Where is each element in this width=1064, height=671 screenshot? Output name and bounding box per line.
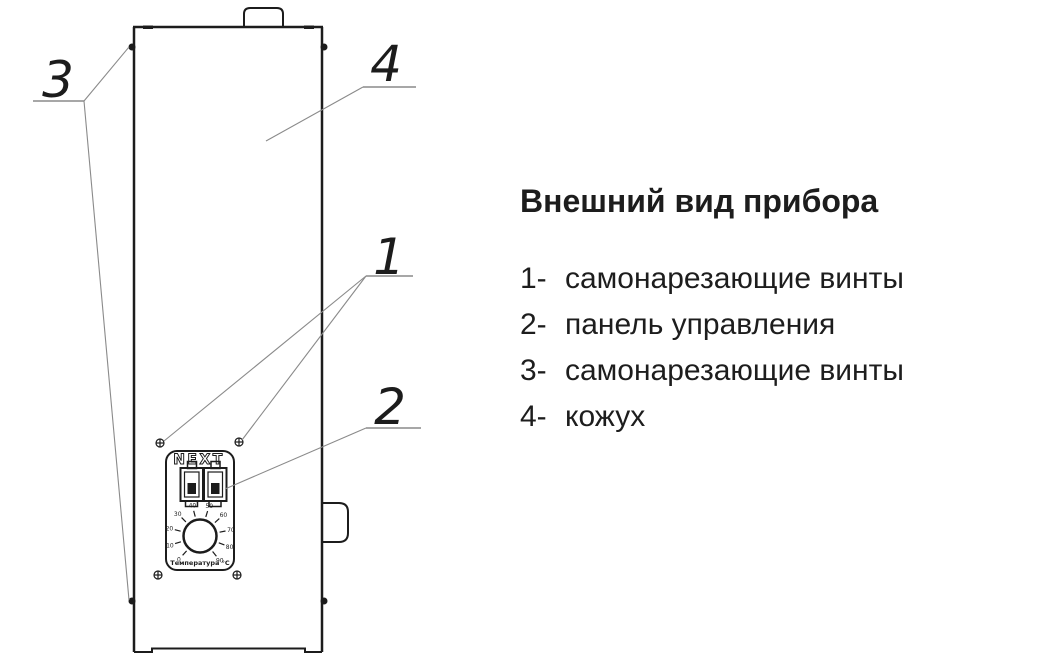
device-diagram: NEXT 0102030405060708090 Те: [0, 0, 520, 671]
breaker-switch-left: [181, 462, 204, 507]
callout-4: 4: [266, 35, 416, 141]
dial-scale-label: 10: [166, 542, 174, 549]
dial-tick: [219, 543, 225, 545]
legend-item-2: 2- панель управления: [520, 302, 1060, 348]
edge-screw-top-right: [321, 44, 328, 51]
dial-knob: [184, 520, 217, 553]
dial-tick: [220, 531, 226, 532]
temperature-dial: 0102030405060708090 Температура °C: [166, 503, 235, 567]
breaker-switch-right: [204, 462, 227, 507]
legend-item-1: 1- самонарезающие винты: [520, 256, 1060, 302]
dial-scale-label: 40: [189, 503, 197, 510]
front-screw-top-left: [156, 439, 164, 447]
legend-item-4-number: 4-: [520, 394, 565, 440]
legend-item-4: 4- кожух: [520, 394, 1060, 440]
callout-4-number: 4: [370, 35, 402, 93]
dial-tick: [213, 552, 217, 557]
dial-tick: [182, 518, 186, 522]
legend-item-2-number: 2-: [520, 302, 565, 348]
dial-caption: Температура °C: [170, 559, 230, 567]
device-body: [129, 8, 349, 652]
dial-scale-label: 70: [227, 527, 235, 534]
dial-scale-label: 20: [166, 526, 174, 533]
dial-scale: 0102030405060708090: [166, 503, 235, 565]
legend-item-3: 3- самонарезающие винты: [520, 348, 1060, 394]
brand-logo: NEXT: [173, 452, 225, 468]
legend: Внешний вид прибора 1- самонарезающие ви…: [520, 183, 1060, 440]
top-seam-mark-left: [143, 26, 153, 30]
legend-title: Внешний вид прибора: [520, 183, 1060, 220]
legend-item-3-label: самонарезающие винты: [565, 348, 904, 394]
top-seam-mark-right: [304, 26, 314, 30]
legend-list: 1- самонарезающие винты 2- панель управл…: [520, 256, 1060, 440]
device-bottom-edge: [134, 649, 322, 653]
dial-tick: [183, 551, 187, 555]
callout-1-number: 1: [373, 228, 405, 286]
page: NEXT 0102030405060708090 Те: [0, 0, 1064, 671]
callout-3: 3: [33, 47, 129, 600]
legend-item-4-label: кожух: [565, 394, 645, 440]
legend-item-3-number: 3-: [520, 348, 565, 394]
dial-scale-label: 60: [220, 512, 228, 519]
front-screw-bottom-left: [154, 571, 162, 579]
front-screw-bottom-right: [233, 571, 241, 579]
dial-scale-label: 80: [226, 544, 234, 551]
edge-screw-top-left: [129, 44, 136, 51]
top-fitting: [244, 8, 283, 27]
dial-tick: [194, 511, 196, 517]
dial-tick: [215, 519, 219, 523]
dial-tick: [206, 511, 208, 517]
front-screw-top-right: [235, 438, 243, 446]
legend-item-1-number: 1-: [520, 256, 565, 302]
dial-tick: [175, 530, 181, 532]
dial-tick: [175, 542, 181, 544]
legend-item-1-label: самонарезающие винты: [565, 256, 904, 302]
side-pipe-stub: [322, 503, 348, 542]
dial-scale-label: 30: [174, 511, 182, 518]
dial-scale-label: 50: [205, 503, 213, 510]
legend-item-2-label: панель управления: [565, 302, 835, 348]
control-panel: NEXT 0102030405060708090 Те: [166, 451, 235, 570]
edge-screw-bottom-left: [129, 598, 136, 605]
edge-screw-bottom-right: [321, 598, 328, 605]
